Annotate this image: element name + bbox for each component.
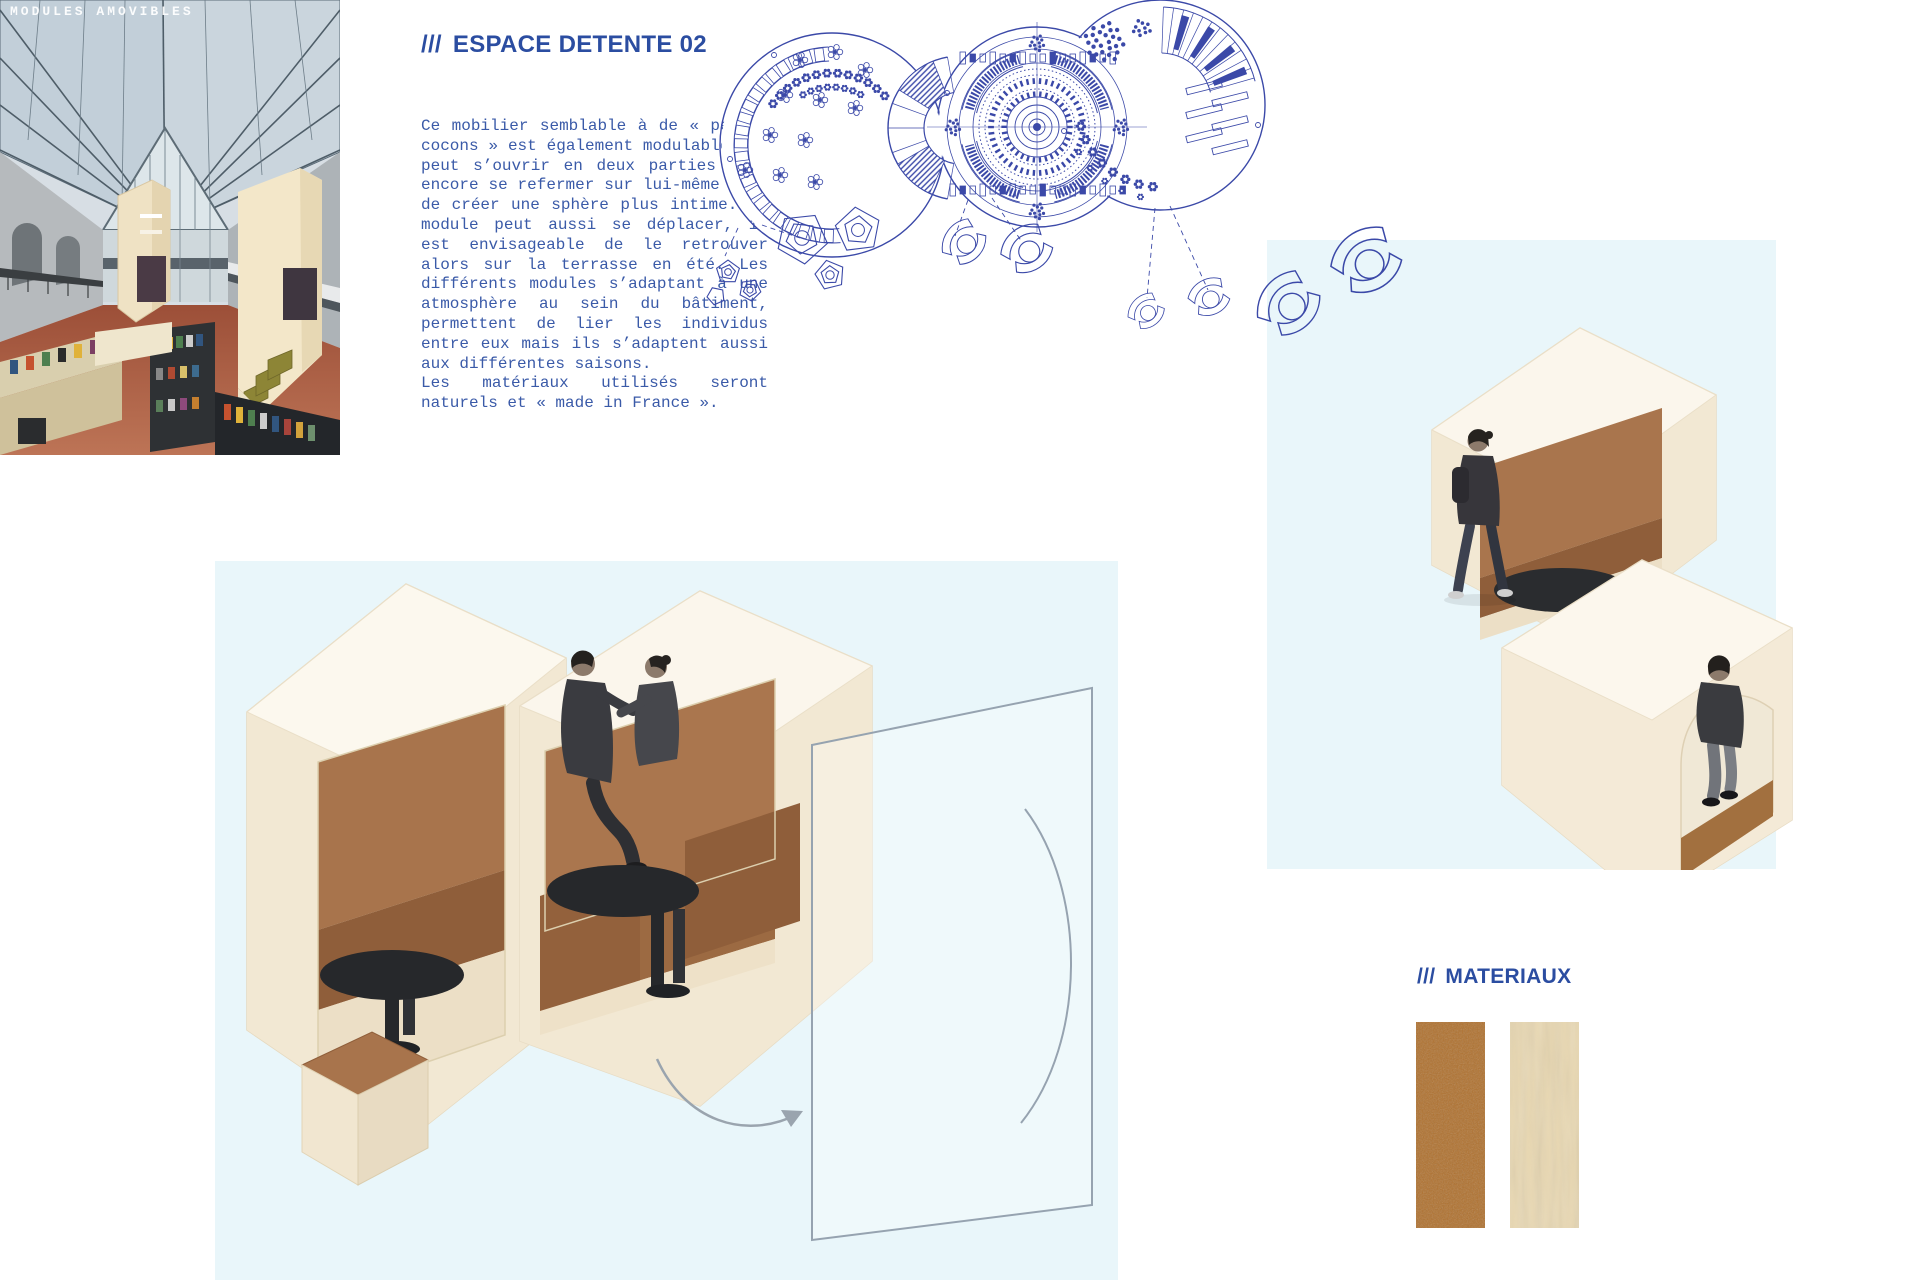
- material-swatch-leather: [1416, 1022, 1485, 1228]
- plywood-tower-center: [118, 180, 170, 322]
- module-left-interior: [318, 705, 505, 1100]
- title-slashes: ///: [421, 31, 442, 58]
- materials-title-text: MATERIAUX: [1445, 965, 1571, 988]
- module-left: [247, 584, 566, 1185]
- library-photo-illustration: [0, 0, 340, 455]
- materials-slashes: ///: [1417, 965, 1435, 988]
- library-photo: MODULES AMOVIBLES: [0, 0, 340, 455]
- photo-caption: MODULES AMOVIBLES: [10, 4, 194, 19]
- body-text-line: Les matériaux utilisés seront: [421, 374, 768, 394]
- materials-title: ///MATERIAUX: [1417, 965, 1571, 989]
- material-swatch-plywood: [1510, 1022, 1579, 1228]
- body-text-line: aux différentes saisons.: [421, 355, 768, 375]
- glass-door-panel: [812, 688, 1092, 1240]
- body-text-line: naturels et « made in France ».: [421, 394, 768, 414]
- isometric-cocoon-modules: [215, 561, 1118, 1280]
- blueprint-plan-drawing: [650, 0, 1420, 345]
- portfolio-page: MODULES AMOVIBLES ///ESPACE DETENTE 02 C…: [0, 0, 1920, 1280]
